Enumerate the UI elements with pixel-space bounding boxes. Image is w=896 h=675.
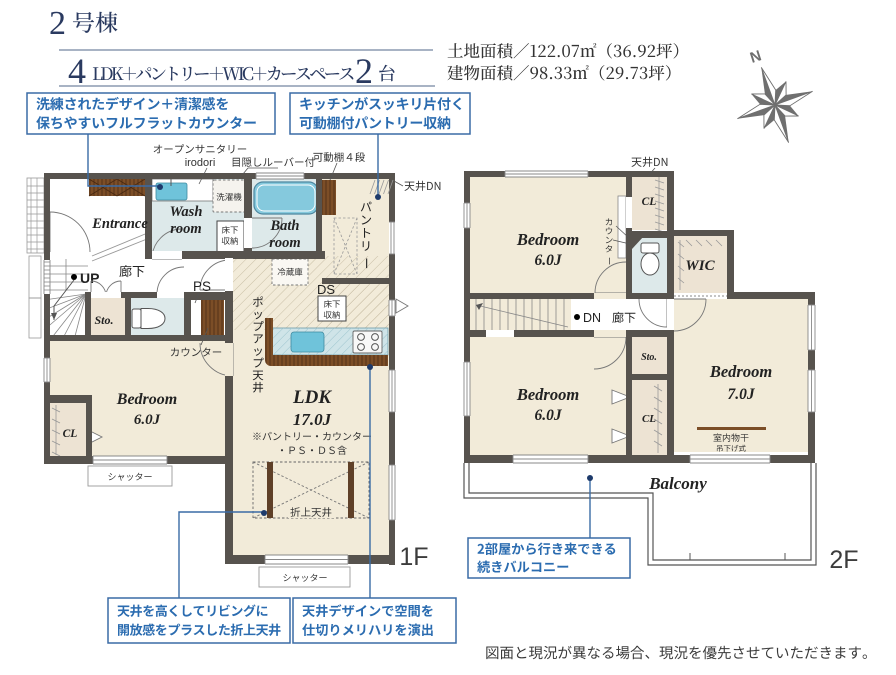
svg-text:CL: CL [63,428,78,440]
svg-text:6.0J: 6.0J [134,412,161,428]
svg-text:4: 4 [68,51,86,91]
svg-text:CL: CL [642,413,656,425]
svg-text:Wash: Wash [170,204,203,220]
svg-text:Bath: Bath [269,218,299,234]
svg-text:room: room [269,235,300,251]
svg-text:WIC: WIC [685,258,715,274]
svg-text:Bedroom: Bedroom [709,362,773,381]
svg-text:irodori: irodori [185,157,216,169]
svg-text:7.0J: 7.0J [727,386,755,403]
svg-text:17.0J: 17.0J [293,410,332,429]
svg-text:CL: CL [642,196,657,208]
svg-text:Bedroom: Bedroom [116,391,177,408]
svg-text:LDK: LDK [292,387,332,408]
svg-text:Balcony: Balcony [648,474,707,493]
svg-text:2: 2 [49,5,66,42]
svg-text:Entrance: Entrance [91,216,148,232]
svg-text:6.0J: 6.0J [534,252,562,269]
svg-text:DN: DN [583,311,601,325]
svg-text:UP: UP [80,270,99,286]
svg-text:Bedroom: Bedroom [516,385,580,404]
svg-text:room: room [170,221,201,237]
svg-text:6.0J: 6.0J [534,407,562,424]
svg-text:Bedroom: Bedroom [516,230,580,249]
svg-text:Sto.: Sto. [94,313,113,327]
svg-text:2: 2 [355,51,373,91]
svg-text:1F: 1F [399,543,428,571]
svg-text:Sto.: Sto. [641,352,657,363]
svg-text:PS: PS [193,279,211,294]
svg-text:2F: 2F [829,546,858,574]
svg-text:DS: DS [317,282,335,297]
